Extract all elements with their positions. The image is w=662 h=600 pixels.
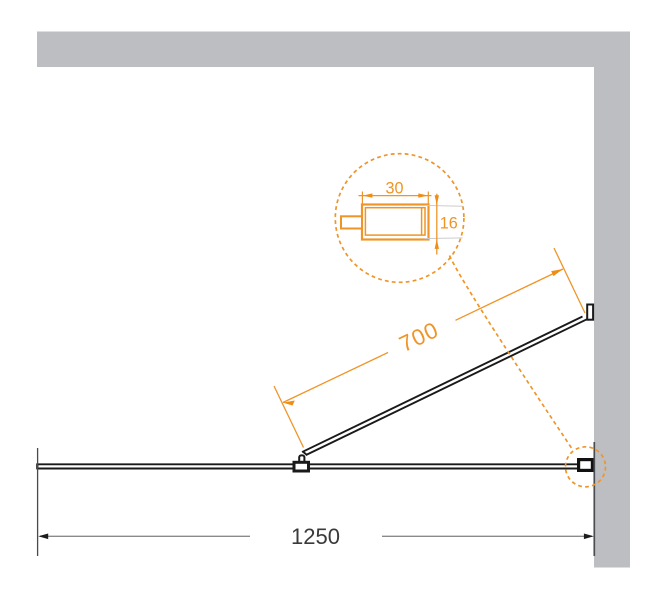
svg-text:30: 30 — [385, 179, 403, 197]
svg-text:1250: 1250 — [291, 524, 340, 549]
svg-text:16: 16 — [440, 215, 458, 233]
